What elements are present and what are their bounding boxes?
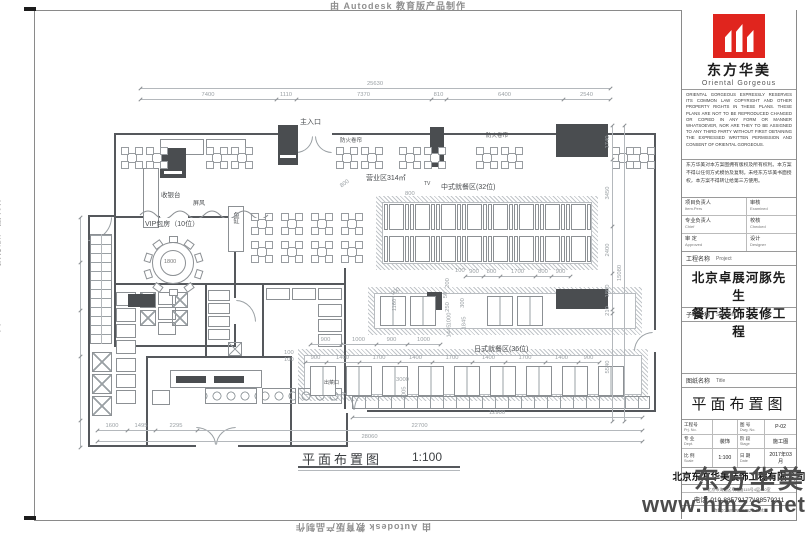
kitchen-equipment	[292, 288, 316, 300]
dim-tick	[608, 97, 612, 101]
booth-table	[441, 236, 456, 262]
booth-bench	[561, 204, 565, 230]
stair-centerline	[101, 234, 102, 344]
column	[214, 376, 244, 383]
dim-label: 3000	[396, 377, 409, 383]
dining-table	[231, 147, 251, 167]
dining-table	[399, 147, 419, 167]
drawing-title: 平面布置图	[682, 388, 796, 420]
booth-table	[493, 204, 508, 230]
vip-room-label: VIP包房（10位）	[145, 219, 199, 229]
booth-bench	[561, 236, 565, 262]
dim-label: 1860	[605, 285, 611, 298]
dining-table	[424, 147, 444, 167]
booth-bench	[587, 236, 591, 262]
wall	[146, 356, 292, 358]
main-entrance-label: 主入口	[300, 117, 321, 127]
booth-bench	[384, 236, 388, 262]
equipment-unit	[172, 310, 188, 326]
equipment-unit	[140, 310, 156, 326]
brand-logo-icon	[713, 14, 765, 58]
kitchen-equipment	[266, 288, 290, 300]
booth-table	[389, 236, 404, 262]
dim-label: 1110	[280, 92, 292, 98]
personnel-table: 项目负责人Item.Pers 审核Examined 专业负责人Chief 校核C…	[682, 198, 796, 252]
wall	[654, 133, 656, 412]
company-logo: 东方华美 Oriental Gorgeous	[682, 10, 796, 90]
dim-label: 12900	[489, 410, 505, 416]
jp-table	[454, 366, 480, 396]
wall	[262, 283, 264, 357]
kitchen-equipment	[318, 304, 342, 317]
column	[556, 124, 608, 157]
booth-bench	[457, 236, 461, 262]
column-detail	[164, 171, 182, 174]
dim-label: 2295	[170, 423, 183, 429]
dim-label: 7400	[202, 92, 215, 98]
dim-label: 250	[445, 302, 451, 312]
door-arc	[315, 136, 332, 153]
dim-label: 2400	[605, 243, 611, 256]
booth-bench	[436, 204, 440, 230]
dim-label: 1700	[373, 355, 386, 361]
booth-bench	[566, 204, 570, 230]
wall	[146, 356, 148, 446]
dim-line	[352, 417, 642, 418]
dim-label: 25630	[367, 81, 383, 87]
dining-table	[281, 213, 301, 233]
booth-bench	[514, 236, 518, 262]
booth-bench	[410, 204, 414, 230]
dim-label: 800	[405, 191, 415, 197]
column	[128, 294, 155, 307]
booth-bench	[514, 204, 518, 230]
logo-name-en: Oriental Gorgeous	[686, 80, 792, 87]
kitchen-equipment	[152, 390, 170, 405]
chinese-dining-label: 中式就餐区(32位)	[441, 182, 495, 192]
booth-bench	[540, 204, 544, 230]
dim-tick	[640, 428, 644, 432]
booth-bench	[483, 204, 487, 230]
dim-tick	[78, 445, 82, 449]
dim-label: 1495	[135, 423, 148, 429]
door-arc	[296, 136, 313, 153]
jp-table	[487, 296, 513, 326]
title-block: 东方华美 Oriental Gorgeous ORIENTAL GORGEOUS…	[681, 10, 796, 519]
jp-table	[410, 296, 436, 326]
vip-chair	[144, 269, 153, 280]
booth-table	[493, 236, 508, 262]
brand-watermark: 东方华美 www.hmzs.net	[596, 468, 806, 516]
dining-table	[206, 147, 226, 167]
kitchen-equipment	[116, 374, 136, 388]
dim-tick	[438, 342, 442, 346]
dim-label: 100	[284, 350, 294, 356]
vip-chair	[194, 252, 203, 263]
kitchen-equipment	[208, 329, 230, 340]
booth-table	[415, 204, 430, 230]
screen-label: 屏风	[193, 198, 205, 207]
wall	[205, 283, 207, 357]
notes-text: 东方华美对本方案图拥有版权及所有权利。本方案不得以任何方式模仿及复制。未经东方华…	[682, 160, 796, 198]
dim-label: 900	[387, 337, 397, 343]
dim-tick	[622, 419, 626, 423]
dim-label: 1000	[417, 337, 430, 343]
equipment-unit	[228, 342, 242, 356]
booth-bench	[566, 236, 570, 262]
booth-bench	[457, 204, 461, 230]
kitchen-equipment	[208, 303, 230, 314]
booth-table	[389, 204, 404, 230]
dim-label: 1445	[446, 325, 452, 338]
dim-label: 1400	[555, 355, 568, 361]
dim-label: 100	[284, 357, 294, 363]
dim-label: 1600	[106, 423, 119, 429]
vip-chair	[169, 289, 178, 296]
wall	[114, 283, 346, 285]
dining-table	[121, 147, 141, 167]
equipment-unit	[92, 396, 112, 416]
booth-table	[467, 204, 482, 230]
vip-table-diameter: 1800	[164, 259, 176, 265]
dining-table	[146, 147, 166, 167]
dim-line	[305, 362, 599, 363]
wall	[114, 133, 116, 217]
booth-bench	[509, 204, 513, 230]
fire-shutter-label: 防火卷帘	[340, 136, 362, 144]
booth-table	[545, 204, 560, 230]
kitchen-equipment	[116, 324, 136, 338]
dim-label: 1400	[336, 355, 349, 361]
dim-label: 1400	[482, 355, 495, 361]
dim-line	[140, 88, 610, 89]
kitchen-equipment	[318, 319, 342, 332]
dining-table	[501, 147, 521, 167]
dim-label: 15080	[617, 265, 623, 281]
dim-label: 2540	[580, 92, 593, 98]
cashier-label: 收银台	[161, 189, 181, 199]
drawing-info-table: 工程号Prj. No. 图 号Dwg. No. P-02 专 业Dept. 装饰…	[682, 420, 796, 468]
kitchen-equipment	[116, 390, 136, 404]
kitchen-equipment	[208, 290, 230, 301]
kitchen-equipment	[116, 308, 136, 322]
booth-bench	[535, 236, 539, 262]
column	[556, 289, 608, 309]
dining-table	[281, 241, 301, 261]
dim-line	[80, 217, 81, 447]
column	[176, 376, 206, 383]
booth-bench	[462, 236, 466, 262]
dim-label: 1000	[352, 337, 365, 343]
dim-tick	[608, 86, 612, 90]
dining-table	[361, 147, 381, 167]
dim-label: 1160	[392, 299, 398, 311]
dim-label: 1700	[519, 355, 532, 361]
booth-bench	[405, 236, 409, 262]
tv-label: TV	[424, 181, 430, 187]
jp-table	[598, 366, 624, 396]
booth-table	[441, 204, 456, 230]
booth-bench	[540, 236, 544, 262]
dim-tick	[610, 419, 614, 423]
booth-table	[571, 204, 586, 230]
japanese-dining-label: 日式就餐区(36位)	[474, 344, 528, 354]
dining-table	[633, 147, 653, 167]
booth-bench	[431, 236, 435, 262]
column-detail	[280, 155, 296, 158]
food-pass-label: 出菜口	[324, 379, 339, 386]
dim-label: 6400	[498, 92, 511, 98]
dim-label: 1700	[446, 355, 459, 361]
dining-table	[251, 241, 271, 261]
dim-label: 28060	[361, 434, 377, 440]
caption-underline	[298, 466, 460, 468]
dim-label: 3450	[605, 186, 611, 199]
dim-label: 900	[469, 269, 479, 275]
booth-table	[545, 236, 560, 262]
booth-bench	[535, 204, 539, 230]
booth-table	[571, 236, 586, 262]
dim-label: 200	[445, 278, 451, 288]
jp-table	[490, 366, 516, 396]
kitchen-equipment	[318, 288, 342, 300]
dim-label: 800	[487, 269, 497, 275]
jp-table	[418, 366, 444, 396]
vip-chair	[194, 269, 203, 280]
dim-label: 900	[321, 337, 331, 343]
booth-bench	[509, 236, 513, 262]
screen-divider	[138, 206, 270, 218]
dim-line	[97, 430, 642, 431]
dim-label: 1000	[446, 313, 452, 326]
dim-tick	[568, 274, 572, 278]
dim-label: 300	[460, 298, 466, 308]
booth-bench	[405, 204, 409, 230]
booth-table	[519, 204, 534, 230]
dim-label: 5540	[605, 361, 611, 374]
kitchen-equipment	[116, 358, 136, 372]
dim-label: 900	[311, 355, 321, 361]
business-area-label: 营业区314㎡	[366, 173, 406, 183]
booth-table	[467, 236, 482, 262]
booth-bench	[488, 236, 492, 262]
jp-table	[526, 366, 552, 396]
dining-table	[476, 147, 496, 167]
dim-line	[140, 99, 610, 100]
booth-table	[519, 236, 534, 262]
dining-table	[341, 241, 361, 261]
dining-table	[311, 241, 331, 261]
dim-label: 1845	[461, 317, 467, 330]
dim-tick	[640, 415, 644, 419]
copyright-text: ORIENTAL GORGEOUS EXPRESSLY RESERVES ITS…	[682, 90, 796, 160]
dim-tick	[640, 439, 644, 443]
dining-table	[311, 213, 331, 233]
logo-name-cn: 东方华美	[686, 60, 792, 80]
dim-line	[97, 441, 642, 442]
dim-label: 22700	[411, 423, 427, 429]
dim-label: 800	[339, 179, 350, 189]
dim-label: 810	[434, 92, 444, 98]
dim-label: 1700	[511, 269, 524, 275]
stove	[205, 388, 257, 404]
column	[278, 125, 298, 165]
dim-label: 1400	[409, 355, 422, 361]
cad-sheet: { "watermarks": { "autodesk": "由 Autodes…	[0, 0, 810, 532]
dim-label: 7370	[357, 92, 370, 98]
booth-bench	[384, 204, 388, 230]
jp-table	[346, 366, 372, 396]
dining-table	[612, 147, 632, 167]
fire-shutter-label: 防火卷帘	[486, 131, 508, 139]
plan-caption-scale: 1:100	[412, 450, 442, 464]
booth-bench	[436, 236, 440, 262]
dim-label: 50	[443, 292, 449, 298]
equipment-unit	[92, 374, 112, 394]
booth-bench	[410, 236, 414, 262]
dim-label: 210	[605, 306, 611, 316]
stove	[262, 388, 296, 404]
dim-label: 1740	[605, 136, 611, 149]
dim-label: 900	[556, 269, 566, 275]
vip-chair	[169, 236, 178, 243]
equipment-unit	[92, 352, 112, 372]
booth-bench	[462, 204, 466, 230]
dining-table	[341, 213, 361, 233]
caption-underline-thin	[298, 470, 460, 471]
dim-line	[624, 125, 625, 421]
door-arc	[236, 300, 256, 322]
booth-bench	[587, 204, 591, 230]
kitchen-equipment	[116, 340, 136, 354]
dim-label: 800	[538, 269, 548, 275]
dim-label: 100	[455, 268, 465, 274]
dim-label: 900	[584, 355, 594, 361]
kitchen-equipment	[208, 316, 230, 327]
booth-table	[415, 236, 430, 262]
booth-bench	[431, 204, 435, 230]
project-name: 北京卓展河豚先生 餐厅装饰装修工程	[682, 266, 796, 308]
booth-bench	[483, 236, 487, 262]
dining-table	[336, 147, 356, 167]
sheet-title-label: 图纸名称Title	[682, 374, 796, 388]
project-label: 工程名称Project	[682, 252, 796, 266]
jp-table	[562, 366, 588, 396]
counter-strip	[352, 396, 650, 409]
subitem-label: 子项名称Sub Item	[682, 308, 796, 322]
jp-table	[517, 296, 543, 326]
booth-bench	[488, 204, 492, 230]
dim-label: 2005	[401, 387, 407, 400]
